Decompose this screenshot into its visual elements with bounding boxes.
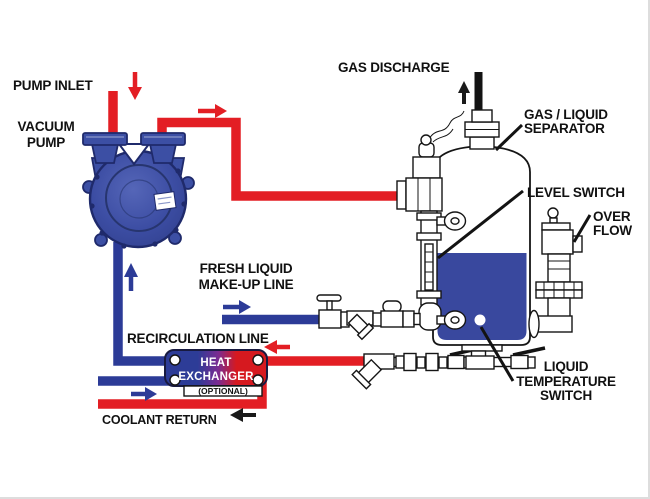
separator-inlet-flange <box>397 181 406 209</box>
vacuum-pump <box>83 133 194 249</box>
overflow-valve-cap <box>542 223 570 230</box>
flow-arrow-makeup-right <box>223 300 251 314</box>
diagram-canvas: PUMP INLET VACUUM PUMP GAS DISCHARGE GAS… <box>0 0 650 499</box>
sight-glass <box>425 244 433 290</box>
pipe-coupling <box>417 357 425 368</box>
pump-lobe <box>95 234 107 246</box>
pump-nameplate <box>154 192 176 211</box>
overflow-label-line2: FLOW <box>593 223 632 238</box>
overflow-pipe <box>548 298 570 318</box>
vacuum-pump-system-diagram: PUMP INLET VACUUM PUMP GAS DISCHARGE GAS… <box>0 0 650 499</box>
separator-leader <box>496 125 522 150</box>
temperature-switch-port <box>475 315 486 326</box>
column-coupling <box>417 233 441 240</box>
flow-arrow-inlet-down <box>128 72 142 100</box>
heat-exchanger-label-line2: EXCHANGER <box>178 371 254 383</box>
overflow-flange <box>536 282 582 298</box>
heat-exchanger-label-line1: HEAT <box>200 357 231 369</box>
y-strainer <box>347 311 373 339</box>
overflow-elbow <box>536 316 572 332</box>
vacuum-pump-label-line1: VACUUM <box>17 119 74 134</box>
union-fitting <box>403 311 414 327</box>
pump-discharge-flange <box>141 133 185 145</box>
recirculation-line-label: RECIRCULATION LINE <box>127 331 269 346</box>
separator-label-line2: SEPARATOR <box>524 121 605 136</box>
hx-port <box>253 375 263 385</box>
inlet-check-valve <box>413 157 440 178</box>
gas-discharge-label: GAS DISCHARGE <box>338 60 450 75</box>
level-switch-cable <box>433 129 453 142</box>
heat-exchanger-optional-label: (OPTIONAL) <box>198 386 248 396</box>
fresh-liquid-label-line1: FRESH LIQUID <box>200 261 293 276</box>
overflow-pipe <box>548 254 570 282</box>
overflow-valve-body <box>542 230 573 254</box>
pump-inlet-neck <box>92 144 118 163</box>
hx-port <box>253 355 263 365</box>
ball-valve <box>511 348 545 369</box>
hx-port <box>170 355 180 365</box>
overflow-assembly <box>529 208 582 338</box>
pump-discharge-pipe <box>162 123 398 197</box>
vacuum-pump-label-line2: PUMP <box>27 135 65 150</box>
flow-arrow-discharge-right <box>198 104 227 118</box>
flow-arrow-coolant-return-left <box>230 408 256 422</box>
column-coupling <box>417 291 441 298</box>
pump-discharge-neck <box>150 144 176 163</box>
gas-liquid-separator <box>429 110 530 345</box>
union-fitting <box>404 354 416 371</box>
flow-arrow-coolant-supply-right <box>131 387 157 401</box>
pipe-coupling <box>414 314 420 325</box>
globe-valve <box>317 295 349 328</box>
level-switch-label: LEVEL SWITCH <box>527 185 625 200</box>
pump-inlet-flange <box>83 133 127 145</box>
separator-inlet-valve <box>406 178 442 211</box>
flow-arrow-gas-up <box>458 81 470 104</box>
pipe-coupling <box>439 357 447 368</box>
fresh-liquid-label-line2: MAKE-UP LINE <box>199 277 294 292</box>
coolant-return-label: COOLANT RETURN <box>102 413 217 427</box>
solenoid-valve <box>381 301 403 327</box>
pipe-coupling <box>396 356 404 368</box>
union-fitting <box>426 354 438 371</box>
overflow-label-line1: OVER <box>593 209 631 224</box>
inlet-check-valve-pivot <box>421 135 431 145</box>
temperature-switch-label-line3: SWITCH <box>540 388 592 403</box>
overflow-tank-flange <box>529 311 539 338</box>
makeup-line-fittings <box>317 295 420 339</box>
overflow-valve-knob <box>548 208 558 218</box>
temperature-switch-label-line2: TEMPERATURE <box>516 374 616 389</box>
overflow-valve-stem <box>550 218 557 223</box>
separator-label-line1: GAS / LIQUID <box>524 107 608 122</box>
pump-inlet-label: PUMP INLET <box>13 78 93 93</box>
separator-top-fitting <box>465 110 499 149</box>
temperature-switch-label-line1: LIQUID <box>544 359 589 374</box>
flow-arrow-drain-up <box>124 263 138 291</box>
